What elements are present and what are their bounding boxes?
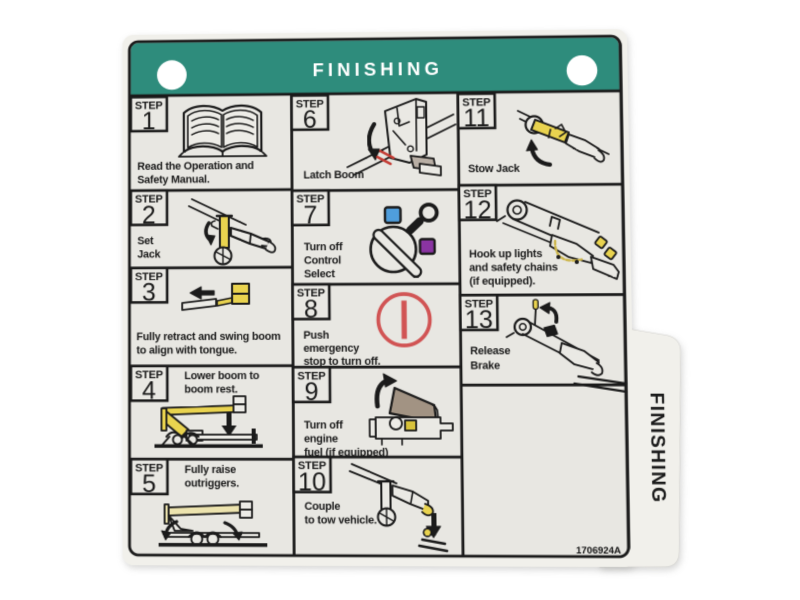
svg-text:Turn off: Turn off [304, 419, 343, 431]
svg-text:and safety chains: and safety chains [469, 261, 558, 274]
svg-text:13: 13 [465, 307, 494, 335]
svg-text:Jack: Jack [137, 248, 160, 260]
svg-text:(if equipped).: (if equipped). [469, 275, 535, 288]
svg-text:Fully raise: Fully raise [185, 464, 237, 476]
svg-text:Stow Jack: Stow Jack [468, 163, 520, 176]
svg-text:6: 6 [303, 107, 317, 134]
svg-text:Release: Release [470, 345, 511, 358]
svg-text:stop to turn off.: stop to turn off. [304, 355, 381, 368]
svg-text:emergency: emergency [303, 342, 359, 354]
svg-text:Read the Operation and: Read the Operation and [137, 160, 254, 173]
svg-text:10: 10 [298, 469, 326, 497]
svg-text:engine: engine [304, 433, 338, 445]
svg-text:Set: Set [137, 235, 154, 247]
svg-text:12: 12 [463, 197, 491, 225]
svg-text:Turn off: Turn off [304, 241, 343, 253]
svg-text:11: 11 [463, 105, 489, 133]
svg-text:Hook up lights: Hook up lights [469, 248, 543, 261]
svg-text:Select: Select [304, 268, 335, 280]
svg-text:9: 9 [304, 379, 318, 407]
svg-text:to tow vehicle.: to tow vehicle. [305, 514, 378, 527]
svg-text:outriggers.: outriggers. [185, 477, 240, 489]
svg-text:to align with tongue.: to align with tongue. [136, 344, 237, 357]
svg-text:Couple: Couple [304, 500, 340, 513]
svg-text:Control: Control [304, 254, 341, 266]
svg-text:FINISHING: FINISHING [646, 392, 670, 503]
svg-text:5: 5 [142, 471, 156, 499]
svg-text:1: 1 [142, 108, 156, 135]
svg-text:4: 4 [142, 377, 156, 405]
svg-text:boom rest.: boom rest. [184, 383, 238, 395]
svg-text:2: 2 [142, 202, 156, 229]
svg-text:7: 7 [303, 202, 317, 230]
svg-text:Lower boom to: Lower boom to [184, 370, 260, 382]
svg-text:FINISHING: FINISHING [313, 59, 444, 81]
svg-text:Safety Manual.: Safety Manual. [137, 174, 209, 187]
svg-text:fuel (if equipped): fuel (if equipped) [304, 447, 388, 459]
svg-text:8: 8 [304, 296, 318, 324]
svg-text:Push: Push [303, 329, 329, 341]
svg-text:Fully retract and swing boom: Fully retract and swing boom [136, 331, 280, 344]
svg-text:3: 3 [142, 279, 156, 307]
svg-text:Brake: Brake [470, 360, 500, 372]
svg-text:1706924A: 1706924A [576, 545, 622, 556]
